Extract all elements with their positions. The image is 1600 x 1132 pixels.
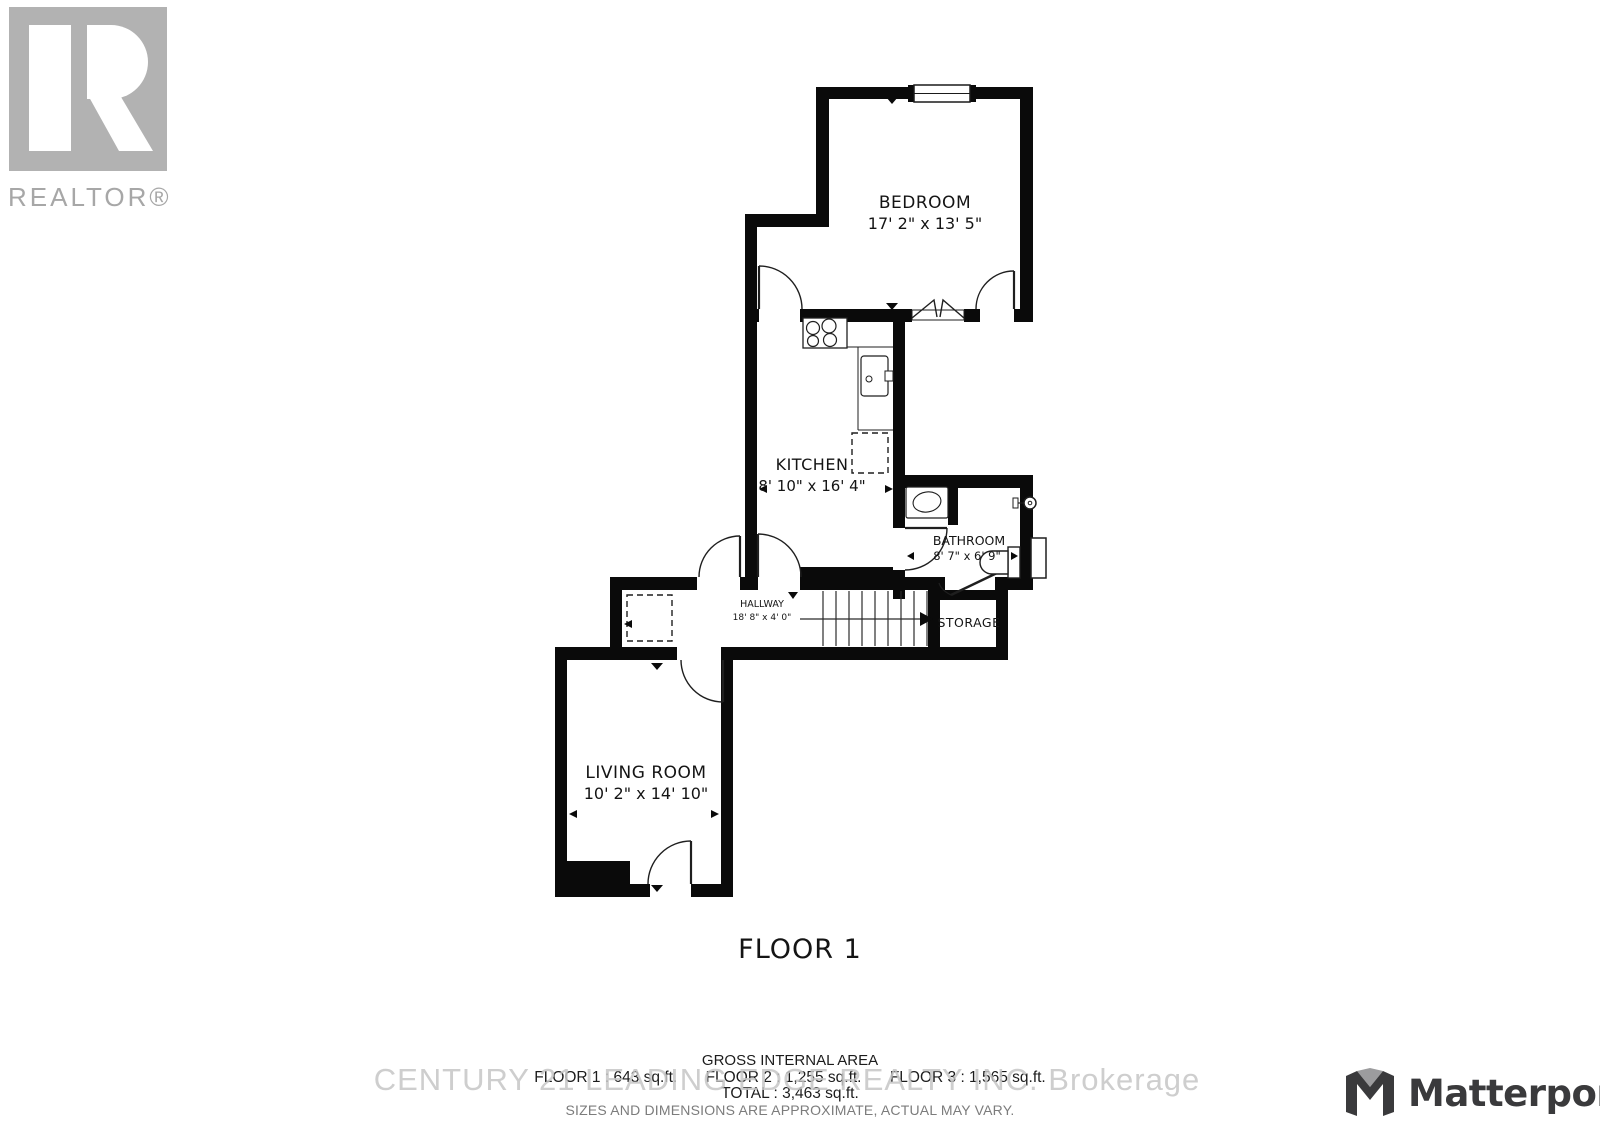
living-room-label: LIVING ROOM xyxy=(585,763,706,783)
bedroom-closet-bifold-door xyxy=(912,300,964,320)
bedroom-dims: 17' 2" x 13' 5" xyxy=(868,214,982,233)
bathroom-dims: 8' 7" x 6' 9" xyxy=(933,549,1001,563)
bedroom-window xyxy=(908,85,976,102)
floor-title: FLOOR 1 xyxy=(738,934,862,965)
bathroom-label: BATHROOM xyxy=(933,533,1005,548)
floorplan: BEDROOM 17' 2" x 13' 5" KITCHEN 8' 10" x… xyxy=(0,0,1600,1132)
hallway-dims: 18' 8" x 4' 0" xyxy=(733,613,792,623)
shower-panel xyxy=(1031,538,1046,578)
kitchen-door xyxy=(758,534,801,577)
matterport-logo: Matterport xyxy=(1344,1068,1600,1118)
fireplace-block xyxy=(565,861,630,885)
staircase xyxy=(800,591,933,646)
living-room-dims: 10' 2" x 14' 10" xyxy=(584,784,709,803)
storage-label: STORAGE xyxy=(937,615,1000,630)
bedroom-label: BEDROOM xyxy=(879,193,971,213)
disclaimer-text: SIZES AND DIMENSIONS ARE APPROXIMATE, AC… xyxy=(290,1102,1290,1118)
entry-door xyxy=(699,536,740,577)
matterport-wordmark: Matterport xyxy=(1408,1072,1600,1115)
kitchen-fixtures xyxy=(803,318,893,473)
hallway-dashed-closet xyxy=(627,595,672,641)
kitchen-appliance-dashed xyxy=(852,433,888,473)
brokerage-watermark: CENTURY 21 LEADING EDGE REALTY INC. Brok… xyxy=(287,1062,1287,1098)
living-room-bottom-door xyxy=(648,841,691,884)
matterport-icon xyxy=(1344,1068,1396,1118)
bedroom-door-left xyxy=(759,266,802,309)
bedroom-door-right xyxy=(976,271,1014,309)
living-room-top-door xyxy=(681,660,723,702)
kitchen-dims: 8' 10" x 16' 4" xyxy=(758,477,865,495)
hallway-label: HALLWAY xyxy=(740,599,784,610)
kitchen-label: KITCHEN xyxy=(776,455,849,474)
kitchen-sink xyxy=(861,356,888,396)
